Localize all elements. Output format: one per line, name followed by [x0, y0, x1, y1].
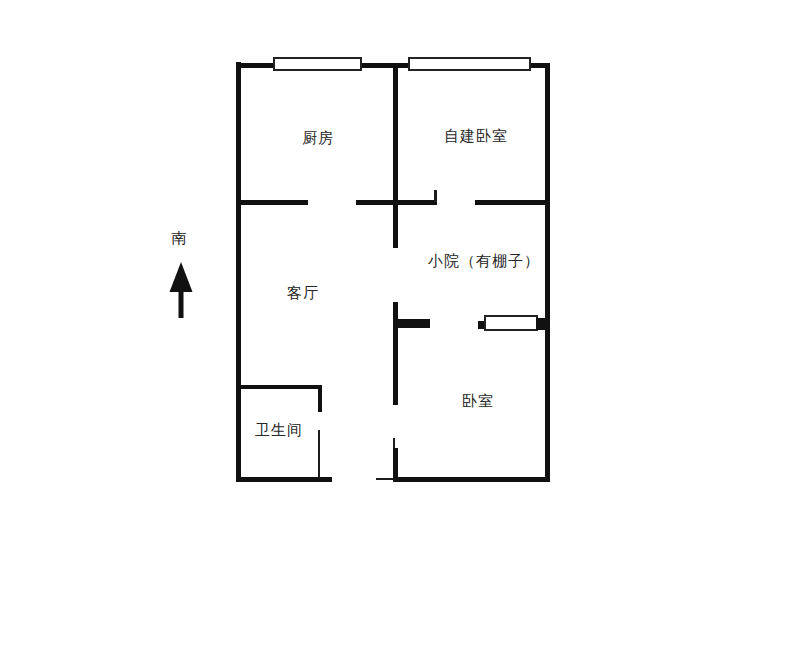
wall-outer-right	[545, 63, 550, 482]
wall-top-segment-left	[236, 63, 276, 68]
room-label-bedroom: 卧室	[462, 392, 494, 411]
wall-bottom-segment-right	[395, 477, 550, 482]
wall-middle-segment-right	[475, 200, 550, 205]
wall-outer-left	[236, 62, 241, 482]
wall-top-segment-right	[529, 63, 550, 68]
room-label-living-room: 客厅	[287, 284, 319, 303]
window-bedroom	[484, 315, 538, 331]
wall-bathroom-top	[236, 385, 322, 389]
wall-living-room-divider-middle	[393, 302, 398, 405]
floorplan-canvas: 南 厨房 自建卧室 小院（有棚子） 客厅 卫生间 卧室	[0, 0, 800, 657]
wall-living-room-divider-lower	[393, 448, 398, 482]
room-label-bathroom: 卫生间	[255, 421, 303, 440]
compass-south-label: 南	[172, 229, 187, 248]
room-label-self-built-bedroom: 自建卧室	[444, 127, 508, 146]
wall-middle-segment-left	[236, 200, 308, 205]
room-label-courtyard: 小院（有棚子）	[428, 252, 540, 271]
door-leaf-bathroom	[318, 430, 320, 478]
window-self-built-bedroom	[408, 57, 531, 71]
door-frame-tick-self-built-bedroom	[434, 190, 437, 202]
window-kitchen	[273, 57, 362, 71]
wall-living-room-divider-upper	[393, 200, 398, 248]
wall-kitchen-divider	[393, 63, 398, 205]
arrow-up-icon	[168, 262, 194, 318]
room-label-kitchen: 厨房	[302, 129, 334, 148]
wall-top-segment-middle	[360, 63, 410, 68]
wall-bedroom-window-right-post	[536, 318, 550, 330]
wall-bedroom-north-stub	[396, 319, 430, 328]
wall-bathroom-right-upper	[318, 385, 322, 412]
